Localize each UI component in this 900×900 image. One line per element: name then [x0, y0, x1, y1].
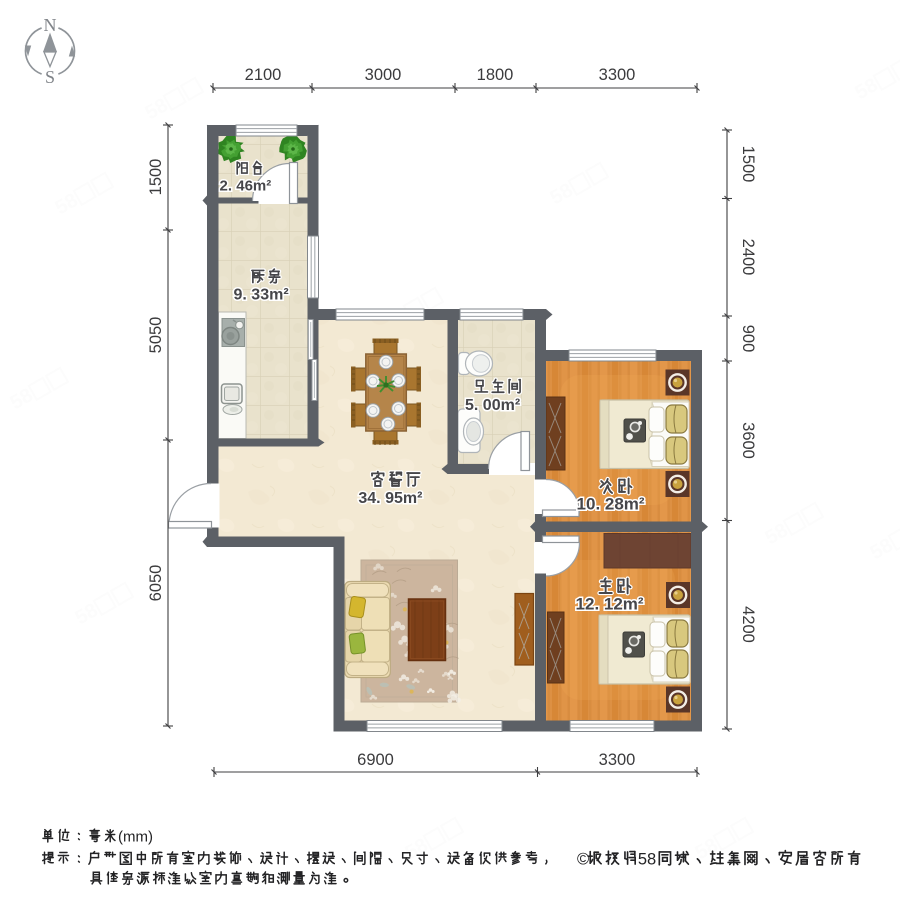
svg-text:1500: 1500 [147, 159, 165, 196]
svg-text:4200: 4200 [739, 606, 757, 643]
svg-text:3600: 3600 [739, 422, 757, 459]
svg-text:900: 900 [739, 325, 757, 353]
svg-text:10. 28m²: 10. 28m² [577, 495, 645, 514]
svg-text:2400: 2400 [739, 239, 757, 276]
svg-text:6900: 6900 [357, 751, 394, 769]
svg-text:1800: 1800 [477, 66, 514, 84]
svg-text:9. 33m²: 9. 33m² [234, 286, 289, 303]
svg-text:5050: 5050 [147, 317, 165, 354]
svg-text:N: N [44, 15, 57, 35]
svg-text:12. 12m²: 12. 12m² [576, 595, 644, 614]
svg-text:6050: 6050 [147, 565, 165, 602]
svg-text:(mm): (mm) [118, 828, 153, 845]
svg-text:2100: 2100 [245, 66, 282, 84]
svg-text:1500: 1500 [739, 146, 757, 183]
svg-text:2. 46m²: 2. 46m² [220, 177, 272, 194]
svg-text:5. 00m²: 5. 00m² [465, 397, 520, 414]
svg-text:©: © [577, 850, 589, 868]
svg-text:58: 58 [638, 850, 656, 868]
svg-text:3300: 3300 [599, 751, 636, 769]
svg-text:3300: 3300 [599, 66, 636, 84]
svg-text:3000: 3000 [365, 66, 402, 84]
svg-text:34. 95m²: 34. 95m² [358, 490, 422, 507]
svg-text:S: S [45, 67, 55, 87]
